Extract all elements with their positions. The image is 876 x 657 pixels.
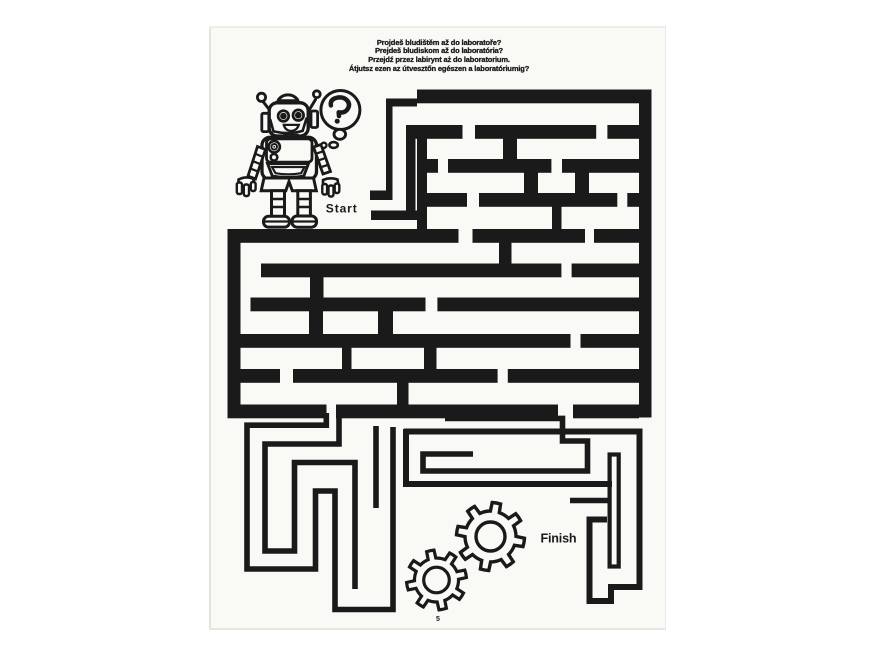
svg-text:5: 5: [436, 616, 440, 623]
svg-text:Finish: Finish: [541, 532, 577, 546]
svg-text:Start: Start: [326, 202, 358, 216]
